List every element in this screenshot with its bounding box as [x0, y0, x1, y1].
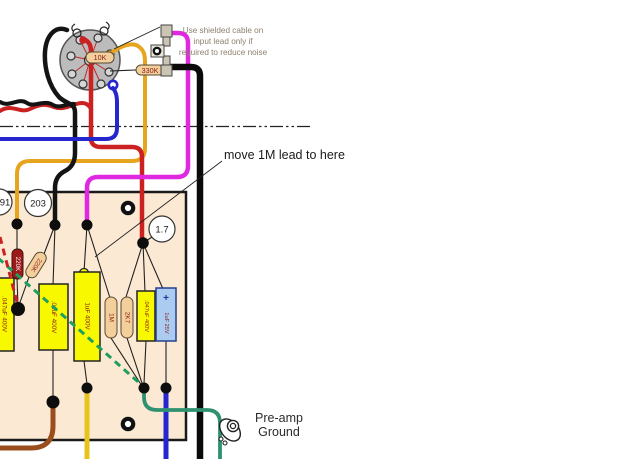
shielded-cable-note-line1: Use shielded cable on [183, 26, 264, 35]
resistor-10k-label: 10K [94, 53, 107, 62]
shielded-cable-note-line3: required to reduce noise [179, 48, 268, 57]
preamp-ground-label-line2: Ground [258, 425, 300, 439]
terminal-strip-mount-hole [154, 48, 160, 54]
test-point-203-value: 203 [30, 199, 46, 210]
capacitor-electrolytic-label: 1uF 25V [163, 312, 169, 333]
board-mount-hole-top [123, 203, 133, 213]
terminal-strip-lug-bottom [161, 65, 172, 76]
capacitor-left-edge-label: .047uF 400V [1, 296, 8, 333]
move-1m-lead-note: move 1M lead to here [224, 148, 345, 162]
test-point-1-7-value: 1.7 [155, 225, 168, 236]
board-mount-hole-bottom [123, 419, 133, 429]
capacitor-1uf-400v-label: 1uF 400V [84, 302, 91, 330]
shielded-cable-note-line2: input lead only if [193, 37, 253, 46]
wiring-diagram: 220K 220K .047uF 400V .01uF 400V 1uF 400… [0, 0, 640, 459]
resistor-330k-label: 330K [142, 66, 159, 75]
electrolytic-plus-sign: + [163, 293, 169, 304]
resistor-1m-label: 1M [108, 313, 115, 322]
resistor-220k-dark-label: 220K [14, 257, 21, 273]
terminal-strip-lug-top [161, 25, 172, 37]
resistor-2k7-label: 2K7 [124, 312, 131, 324]
capacitor-047uf-label: .047uF 400V [143, 300, 149, 332]
test-point-91-value: 91 [0, 198, 10, 209]
preamp-ground-label-line1: Pre-amp [255, 411, 303, 425]
